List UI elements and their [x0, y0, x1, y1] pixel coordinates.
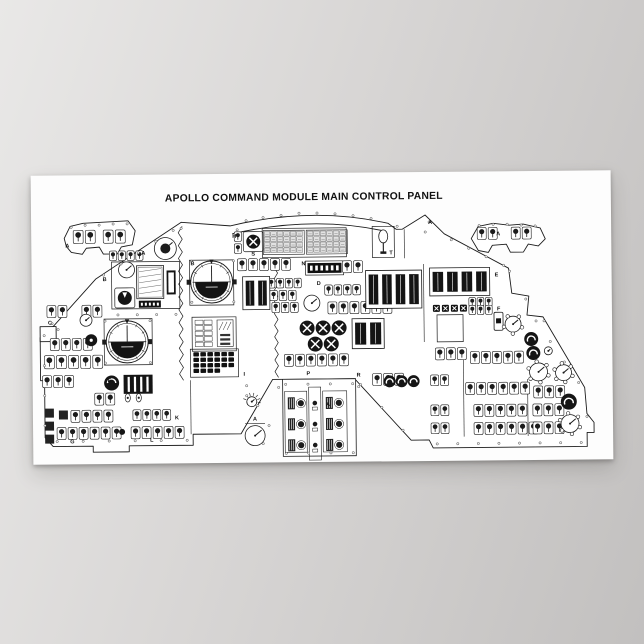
poster-title: APOLLO COMMAND MODULE MAIN CONTROL PANEL [165, 191, 443, 205]
screw [191, 301, 193, 303]
screw [155, 313, 157, 315]
screw [43, 335, 45, 337]
screw [149, 319, 151, 321]
switch-row [534, 386, 565, 398]
rotary-knob [104, 375, 119, 390]
screw [468, 247, 470, 249]
control-panel-diagram: APOLLO COMMAND MODULE MAIN CONTROL PANEL… [31, 170, 614, 465]
screw [307, 383, 309, 385]
screw [520, 224, 522, 226]
screw [155, 240, 157, 242]
rotary-knob [119, 429, 125, 435]
screw [450, 239, 452, 241]
screw [245, 220, 247, 222]
tape-meter-bank [243, 277, 270, 310]
screw [149, 361, 151, 363]
screw [120, 263, 122, 265]
section-label: A [496, 231, 500, 237]
rotary-selector-dial [304, 295, 320, 311]
section-label: H [232, 234, 236, 240]
switch-row [43, 375, 74, 387]
switch-row [44, 355, 102, 369]
square-indicator-stack [59, 410, 68, 419]
poster: APOLLO COMMAND MODULE MAIN CONTROL PANEL… [31, 170, 614, 465]
switch-row [131, 426, 184, 439]
section-label: A [141, 251, 145, 257]
screw [104, 362, 106, 364]
screw [236, 229, 238, 231]
section-label: R [357, 373, 361, 379]
screw [70, 226, 72, 228]
switch-row [435, 348, 466, 360]
screw [436, 443, 438, 445]
screw [104, 320, 106, 322]
striped-indicator [167, 270, 176, 294]
screw [330, 452, 332, 454]
screw [268, 424, 270, 426]
ems-scroll-display [136, 266, 163, 308]
screw [82, 440, 84, 442]
rotary-knob [408, 375, 420, 387]
screw [112, 223, 114, 225]
section-label: N [301, 261, 305, 267]
screw [280, 214, 282, 216]
section-label: K [175, 415, 179, 421]
screw [108, 440, 110, 442]
screw [424, 231, 426, 233]
screw [262, 442, 264, 444]
screw [57, 328, 59, 330]
rotary-selector-dial [154, 237, 176, 259]
section-label: B [103, 277, 107, 283]
product-photo-background: APOLLO COMMAND MODULE MAIN CONTROL PANEL… [0, 0, 644, 644]
screw [84, 224, 86, 226]
screw [334, 213, 336, 215]
screw [186, 439, 188, 441]
switch-row [234, 244, 241, 254]
screw [232, 260, 234, 262]
screw [180, 227, 182, 229]
rotary-knob [384, 375, 396, 387]
rotary-knob [524, 332, 538, 346]
screw [381, 406, 383, 408]
screw [534, 225, 536, 227]
section-label: C [48, 321, 52, 327]
switch-row [470, 351, 523, 364]
rotary-selector-dial [80, 314, 92, 326]
screw [351, 383, 353, 385]
switch-row [237, 258, 290, 271]
section-label: D [317, 281, 321, 287]
screw [358, 385, 360, 387]
oval-toggle [136, 394, 141, 402]
rotary-knob [316, 320, 331, 335]
rotary-knob [396, 375, 408, 387]
mission-timer [307, 263, 341, 273]
screw [563, 361, 565, 363]
screw [285, 452, 287, 454]
screw [284, 383, 286, 385]
screw [262, 216, 264, 218]
rotary-knob [85, 334, 97, 346]
rotary-knob [561, 394, 577, 410]
section-label: A [65, 243, 69, 249]
screw [457, 443, 459, 445]
screw [316, 212, 318, 214]
oval-toggle [125, 394, 130, 402]
switch-row [47, 305, 67, 317]
screw [539, 442, 541, 444]
screw [126, 223, 128, 225]
screw [175, 313, 177, 315]
screw [543, 320, 545, 322]
screw [245, 385, 247, 387]
screw [134, 440, 136, 442]
screw [498, 442, 500, 444]
screw [278, 386, 280, 388]
screw [352, 215, 354, 217]
screw [359, 383, 361, 385]
screw [160, 439, 162, 441]
screw [98, 224, 100, 226]
rotary-knob [526, 346, 540, 360]
rotary-knob [300, 321, 315, 336]
section-label: B [190, 261, 194, 267]
screw [525, 298, 527, 300]
screw [580, 441, 582, 443]
screw [307, 452, 309, 454]
screw [402, 429, 404, 431]
section-label: P [307, 371, 311, 377]
switch-row [270, 290, 296, 300]
screw [44, 395, 46, 397]
circuit-breaker-columns [283, 379, 357, 461]
striped-indicator [124, 375, 153, 394]
screw [485, 256, 487, 258]
screw [117, 314, 119, 316]
screw [518, 442, 520, 444]
screw [559, 442, 561, 444]
switch-row [533, 422, 564, 434]
screw [43, 365, 45, 367]
section-label: E [495, 272, 499, 278]
section-label: A [326, 402, 330, 408]
rotary-selector-dial [544, 347, 552, 355]
annunciator-grid [306, 230, 347, 254]
screw [137, 252, 139, 254]
panel-line-art: AABBCHSNTADEFAIPRAAEKLG [39, 209, 594, 462]
screw [246, 395, 248, 397]
screw [535, 320, 537, 322]
screw [478, 224, 480, 226]
screw [257, 404, 259, 406]
screw [492, 223, 494, 225]
screw [136, 314, 138, 316]
rotary-knob [332, 320, 347, 335]
rotary-knob [324, 336, 339, 351]
screw [44, 425, 46, 427]
section-label: G [70, 439, 74, 445]
screw [586, 415, 588, 417]
tape-meter-bank [430, 267, 490, 296]
screw [352, 452, 354, 454]
switch-row [272, 302, 298, 312]
screw [56, 440, 58, 442]
screw [396, 225, 398, 227]
screw [102, 274, 104, 276]
screw [508, 270, 510, 272]
screw [502, 264, 504, 266]
switch-row [533, 404, 564, 416]
screw [298, 212, 300, 214]
screw [329, 383, 331, 385]
switch-row [469, 305, 492, 314]
tape-meter-bank [352, 318, 384, 348]
annunciator-grid [263, 230, 304, 254]
section-label: E [108, 378, 112, 384]
screw [506, 223, 508, 225]
screw [172, 229, 174, 231]
section-label: S [251, 252, 255, 258]
section-label: A [253, 417, 257, 423]
section-label: A [428, 220, 432, 226]
rotary-knob [308, 336, 323, 351]
screw [477, 442, 479, 444]
tape-meter-bank [366, 270, 422, 309]
switch-row [474, 404, 527, 417]
screw [370, 217, 372, 219]
screw [549, 340, 551, 342]
screw [233, 301, 235, 303]
screw [577, 381, 579, 383]
